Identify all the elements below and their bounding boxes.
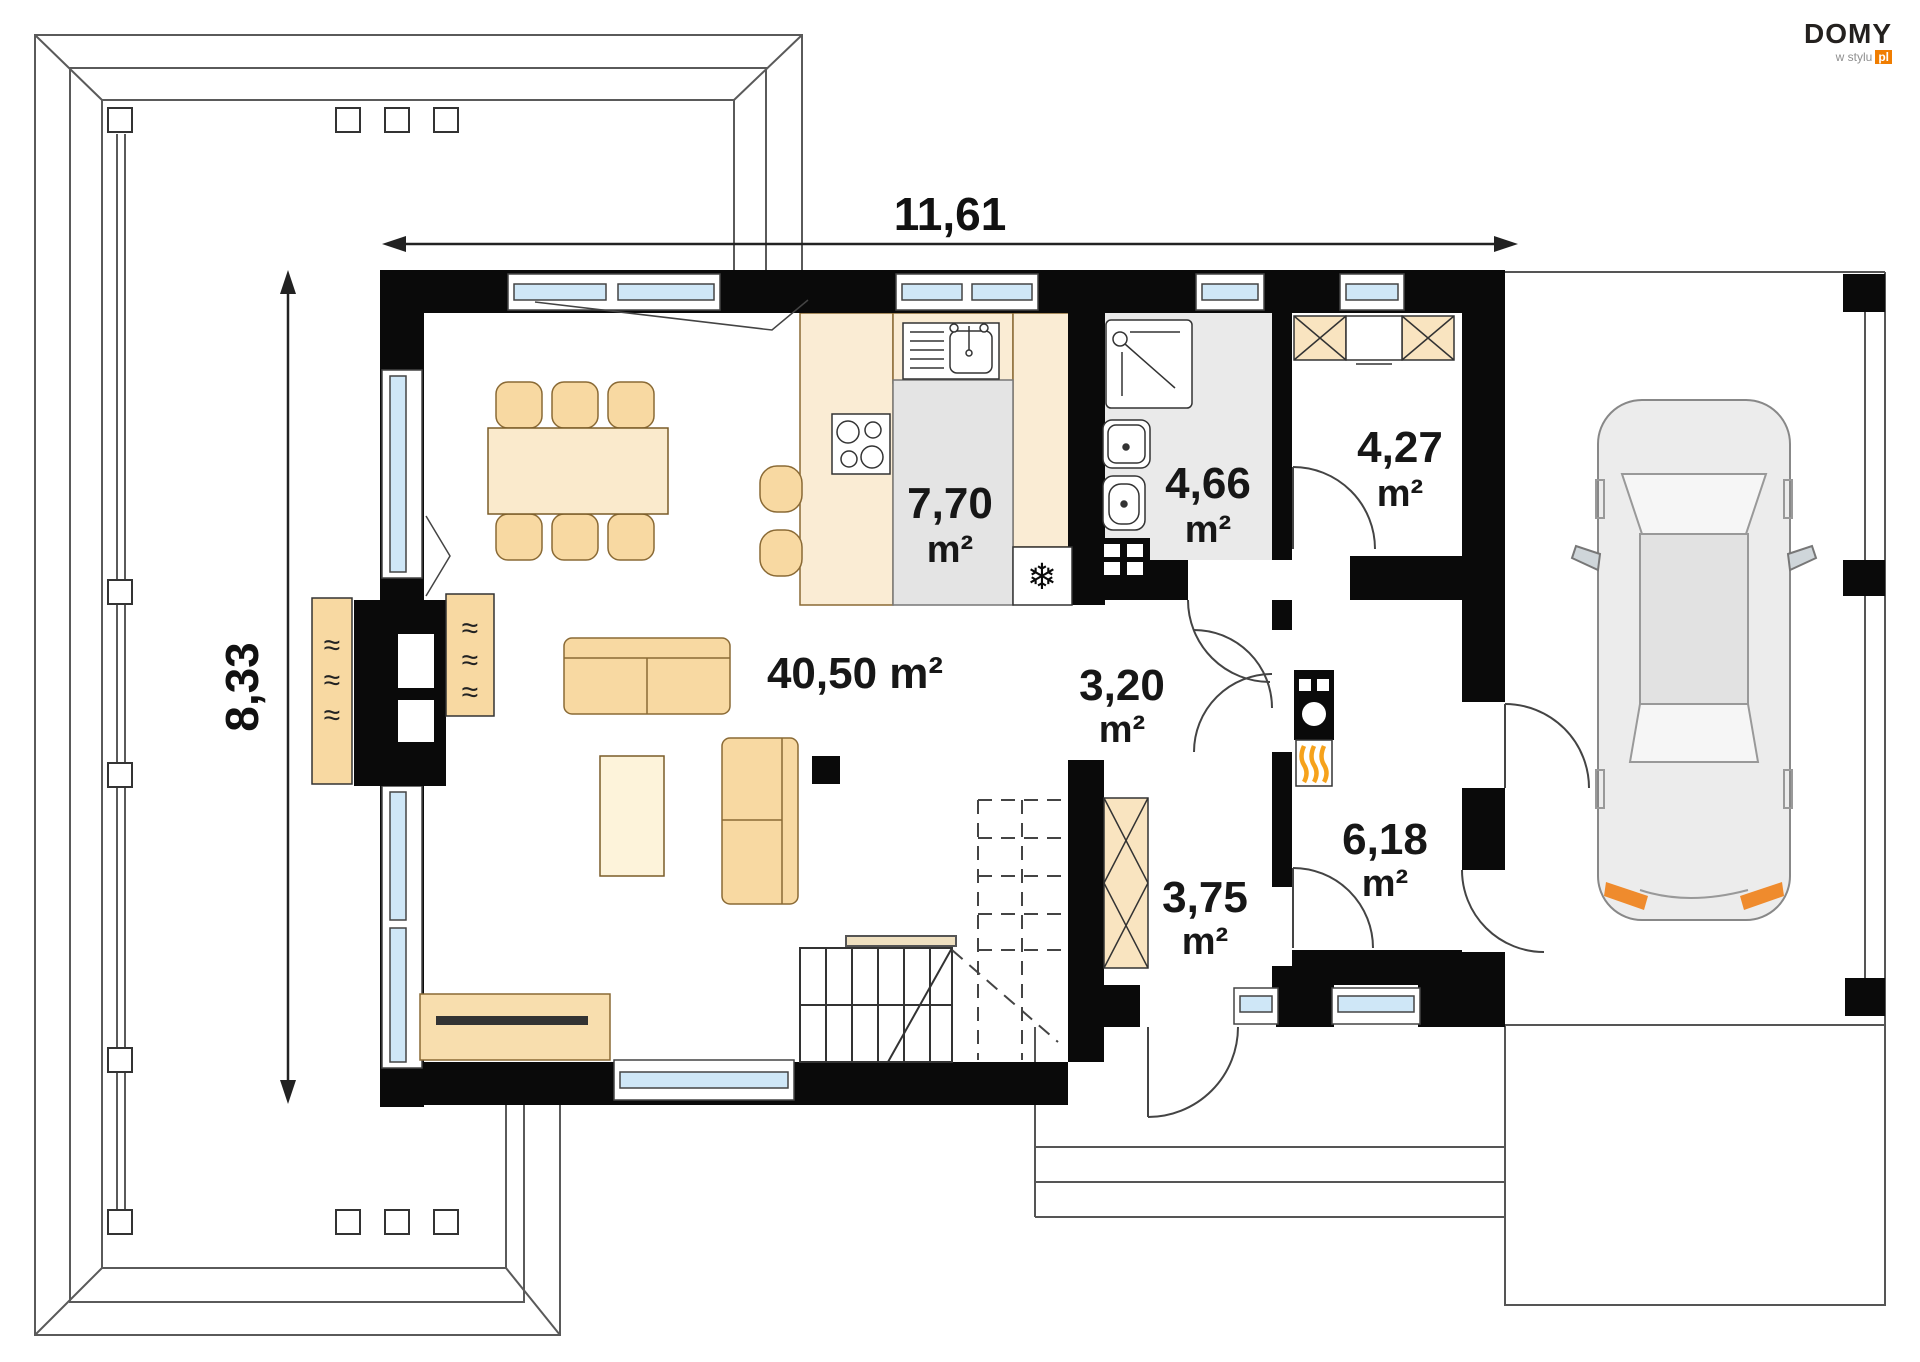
- label-utility-value: 6,18: [1342, 815, 1428, 864]
- car-mirror-right: [1788, 546, 1816, 570]
- tv-cabinet: [420, 994, 610, 1060]
- label-kitchen-value: 7,70: [907, 479, 993, 528]
- chimney-block: [354, 600, 446, 786]
- car-roof: [1640, 534, 1748, 704]
- stair-handrail: [846, 936, 956, 946]
- brand-logo: DOMY w stylupl: [1804, 20, 1892, 64]
- car: [1572, 400, 1816, 920]
- dining-table: [488, 428, 668, 514]
- car-mirror-left: [1572, 546, 1600, 570]
- window-entry-2: [1332, 988, 1420, 1024]
- window-wardrobe: [1340, 274, 1404, 310]
- door-wardrobe: [1293, 467, 1375, 549]
- label-entry-value: 3,75: [1162, 873, 1248, 922]
- fireplace: ≈ ≈ ≈ ≈ ≈ ≈: [312, 594, 494, 786]
- dining-set: [488, 382, 668, 560]
- label-hall-unit: m²: [1099, 709, 1145, 751]
- dimension-width-label: 11,61: [894, 188, 1007, 240]
- structural-column: [812, 756, 840, 784]
- radiator-wave-icon: ≈: [462, 612, 478, 645]
- label-entry-unit: m²: [1182, 921, 1228, 963]
- door-to-carport: [1505, 704, 1589, 788]
- wardrobe-cabinets: [1294, 316, 1454, 364]
- door-hall-upper: [1194, 630, 1272, 708]
- kitchen-counter-right: [1013, 313, 1072, 547]
- driveway-platform: [1505, 1025, 1885, 1305]
- fridge-snowflake-icon: ❄: [1027, 556, 1057, 597]
- label-bathroom-unit: m²: [1185, 509, 1231, 551]
- window-dining: [508, 274, 720, 310]
- dining-chair: [496, 514, 542, 560]
- kitchen-sink: [903, 323, 999, 379]
- arrow-right-icon: [1494, 236, 1518, 252]
- label-kitchen-unit: m²: [927, 529, 973, 571]
- kitchen-stools: [760, 466, 802, 576]
- sofa-vertical: [722, 738, 798, 904]
- floor-plan-drawing: 11,61 8,33: [0, 0, 1920, 1362]
- window-bathroom: [1196, 274, 1264, 310]
- radiator-wave-icon: ≈: [324, 664, 340, 697]
- door-back: [1462, 870, 1544, 952]
- fridge: ❄: [1013, 547, 1072, 605]
- dimension-depth-label: 8,33: [216, 642, 268, 732]
- coffee-table: [600, 756, 664, 876]
- label-living-area: 40,50 m²: [767, 649, 943, 698]
- entry-steps: [1035, 1027, 1505, 1217]
- radiator-wave-icon: ≈: [324, 629, 340, 662]
- car-rear-window: [1630, 704, 1758, 762]
- brand-name: DOMY: [1804, 20, 1892, 48]
- window-living-bottom: [614, 1060, 794, 1100]
- ventilation-shaft: [1098, 538, 1150, 580]
- shower: [1106, 320, 1192, 408]
- radiator-wave-icon: ≈: [324, 699, 340, 732]
- window-kitchen: [896, 274, 1038, 310]
- radiator-wave-icon: ≈: [462, 644, 478, 677]
- dining-chair: [552, 382, 598, 428]
- dimension-depth: 8,33: [216, 270, 296, 1104]
- car-windshield: [1622, 474, 1766, 534]
- dimension-width: 11,61: [382, 188, 1518, 252]
- window-entry-1: [1234, 988, 1278, 1024]
- label-bathroom-value: 4,66: [1165, 459, 1251, 508]
- door-hall-lower: [1194, 674, 1272, 752]
- dining-chair: [552, 514, 598, 560]
- label-wardrobe-value: 4,27: [1357, 423, 1443, 472]
- radiator-wave-icon: ≈: [462, 676, 478, 709]
- floor-plan-page: 11,61 8,33: [0, 0, 1920, 1362]
- label-utility-unit: m²: [1362, 863, 1408, 905]
- dining-chair: [496, 382, 542, 428]
- arrow-left-icon: [382, 236, 406, 252]
- tv-screen: [436, 1016, 588, 1025]
- window-left-lower: [382, 786, 422, 1068]
- entry-wardrobe: [1104, 798, 1148, 968]
- washbasin: [1103, 420, 1150, 468]
- door-bathroom: [1188, 600, 1270, 682]
- stairs: [800, 800, 1066, 1062]
- label-hall-value: 3,20: [1079, 661, 1165, 710]
- dining-chair: [608, 514, 654, 560]
- arrow-down-icon: [280, 1080, 296, 1104]
- boiler: [1294, 670, 1334, 786]
- arrow-up-icon: [280, 270, 296, 294]
- label-wardrobe-unit: m²: [1377, 473, 1423, 515]
- kitchen-stove: [832, 414, 890, 474]
- dining-chair: [608, 382, 654, 428]
- brand-tld-badge: pl: [1875, 50, 1892, 64]
- toilet: [1103, 476, 1145, 530]
- door-entrance: [1148, 1027, 1238, 1117]
- window-left-upper: [382, 370, 422, 578]
- brand-tagline: w stylu: [1836, 51, 1873, 63]
